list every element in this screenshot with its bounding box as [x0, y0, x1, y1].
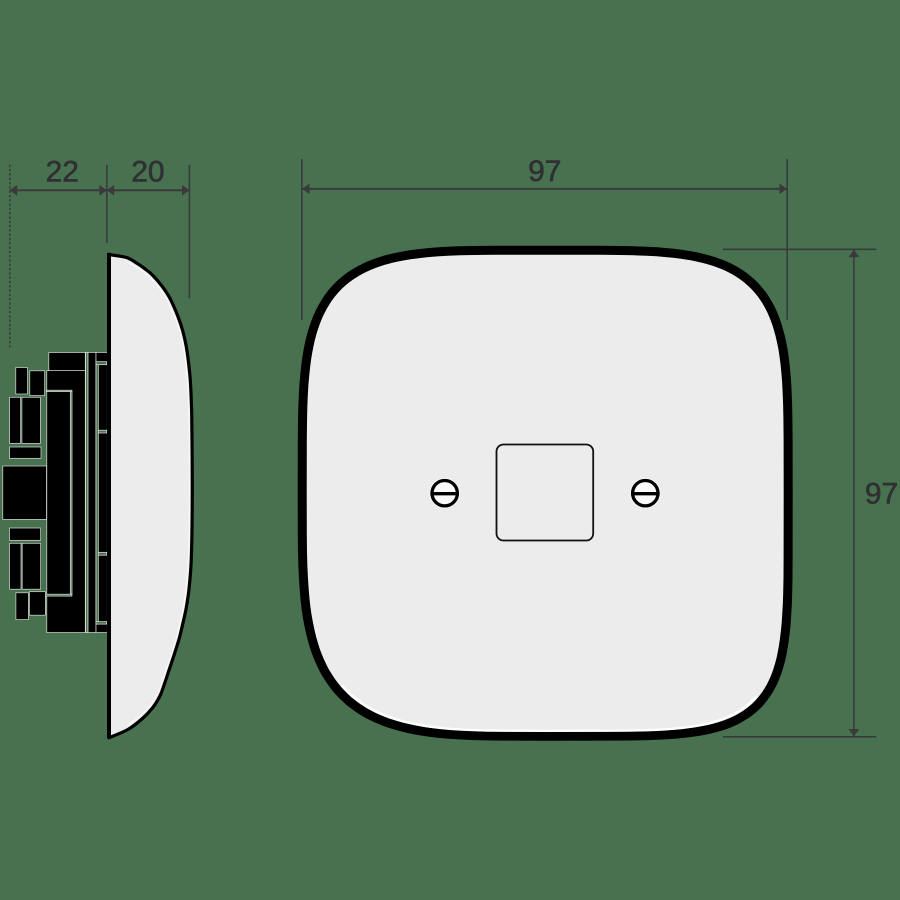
svg-text:97: 97: [865, 478, 898, 511]
svg-text:97: 97: [528, 155, 561, 188]
svg-text:22: 22: [46, 156, 79, 189]
svg-text:20: 20: [131, 156, 164, 189]
